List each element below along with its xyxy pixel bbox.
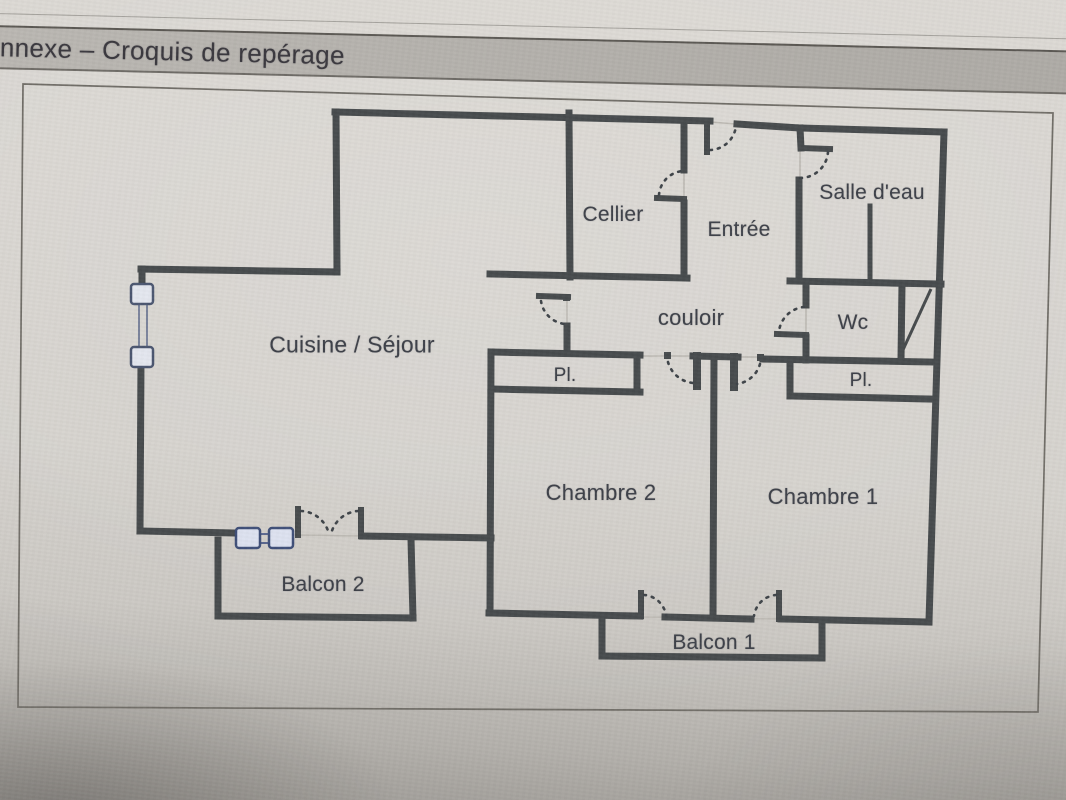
room-label-wc: Wc — [838, 311, 869, 335]
room-label-salle-deau: Salle d'eau — [819, 181, 924, 205]
window-symbol-balcon2 — [236, 528, 293, 548]
cuisine-couloir-door-arc — [541, 301, 565, 324]
wc-door-arc — [779, 307, 804, 331]
salle-deau-door-arc — [800, 152, 828, 178]
room-label-balcon1: Balcon 1 — [672, 631, 755, 655]
balcon1-chambre1-door-arc — [754, 595, 776, 616]
door-sill-lines — [299, 122, 806, 619]
room-label-chambre2: Chambre 2 — [546, 480, 657, 506]
room-label-cuisine-sejour: Cuisine / Séjour — [269, 332, 435, 359]
room-label-balcon2: Balcon 2 — [281, 573, 364, 597]
window-symbol-left-wall — [131, 284, 153, 367]
chambre2-door-arc — [668, 362, 693, 383]
entry-door-arc — [710, 126, 736, 150]
balcon2-door-right-leaf-arc — [331, 511, 358, 534]
floor-plan-drawing — [0, 0, 1066, 800]
room-label-cellier: Cellier — [583, 203, 644, 227]
room-label-placard-chambre1: Pl. — [850, 370, 873, 392]
balcon2-door-left-leaf-arc — [301, 511, 329, 534]
room-label-couloir: couloir — [658, 305, 724, 331]
cellier-door-arc — [659, 171, 683, 195]
balcon1-chambre2-door-arc — [644, 595, 666, 615]
chambre1-door-arc — [737, 364, 760, 384]
room-label-placard-couloir: Pl. — [554, 365, 577, 387]
shaft-diagonal — [902, 289, 931, 352]
room-label-entree: Entrée — [707, 218, 770, 242]
room-label-chambre1: Chambre 1 — [768, 484, 879, 510]
